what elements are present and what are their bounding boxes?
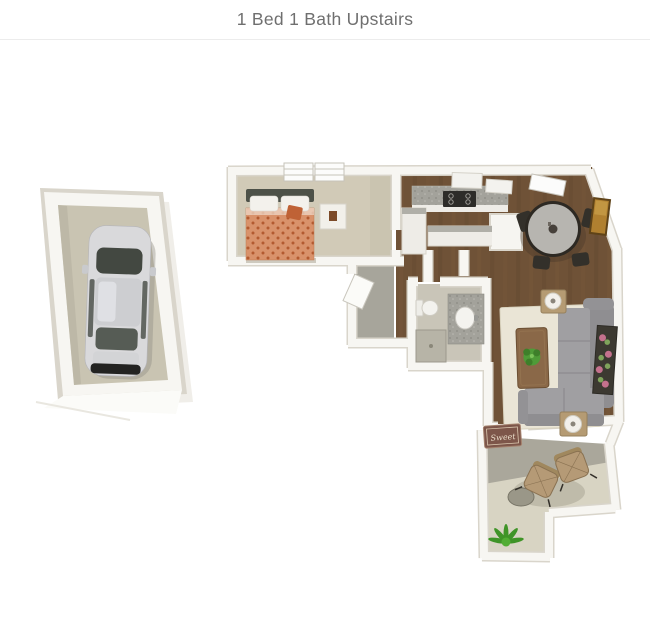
- table-item: [548, 222, 551, 226]
- stove: [443, 191, 476, 207]
- lamp-finial: [551, 299, 556, 304]
- car-mirror-right: [150, 267, 156, 276]
- door-mat-text: Sweet: [490, 432, 516, 443]
- kitchen-cabinet-left: [402, 208, 426, 254]
- bed-pillow-left: [250, 196, 278, 211]
- toilet: [422, 301, 438, 316]
- dining-chair: [532, 255, 550, 270]
- car: [78, 225, 157, 380]
- sofa-armrest-left: [518, 390, 528, 424]
- page-title: 1 Bed 1 Bath Upstairs: [0, 9, 650, 30]
- car-roof-shine: [97, 281, 116, 322]
- kitchen-cabinet-left-top: [402, 208, 426, 214]
- floorplan-image[interactable]: Sweet: [0, 40, 650, 622]
- faucet: [474, 315, 478, 321]
- dining-chair: [571, 252, 590, 267]
- shower-drain: [429, 344, 433, 348]
- bed: [246, 189, 316, 263]
- living-room: [500, 290, 617, 436]
- car-grille: [90, 363, 140, 375]
- plant-center: [502, 538, 511, 547]
- upper-cabinet-2: [486, 179, 513, 194]
- bedroom-window-2: [315, 163, 344, 181]
- header: 1 Bed 1 Bath Upstairs: [0, 0, 650, 30]
- coffee-table: [516, 327, 549, 388]
- pantry-interior: [492, 216, 520, 248]
- nightstand-decor: [329, 211, 337, 221]
- bedroom-window-1: [284, 163, 313, 181]
- door-mat: Sweet: [483, 424, 521, 449]
- wall-art-floral: [593, 325, 618, 394]
- side-table-lamp-top: [541, 290, 566, 313]
- side-table-lamp-bottom: [560, 412, 587, 436]
- lamp-finial: [571, 422, 576, 427]
- bedroom-carpet-shade: [370, 175, 392, 257]
- car-rear-window: [96, 247, 143, 275]
- upper-cabinet-1: [452, 172, 483, 188]
- car-mirror-left: [82, 265, 88, 274]
- nightstand: [320, 204, 346, 229]
- car-windshield: [95, 327, 138, 350]
- garage: [36, 188, 193, 420]
- sink: [456, 307, 475, 329]
- bed-comforter: [246, 208, 314, 260]
